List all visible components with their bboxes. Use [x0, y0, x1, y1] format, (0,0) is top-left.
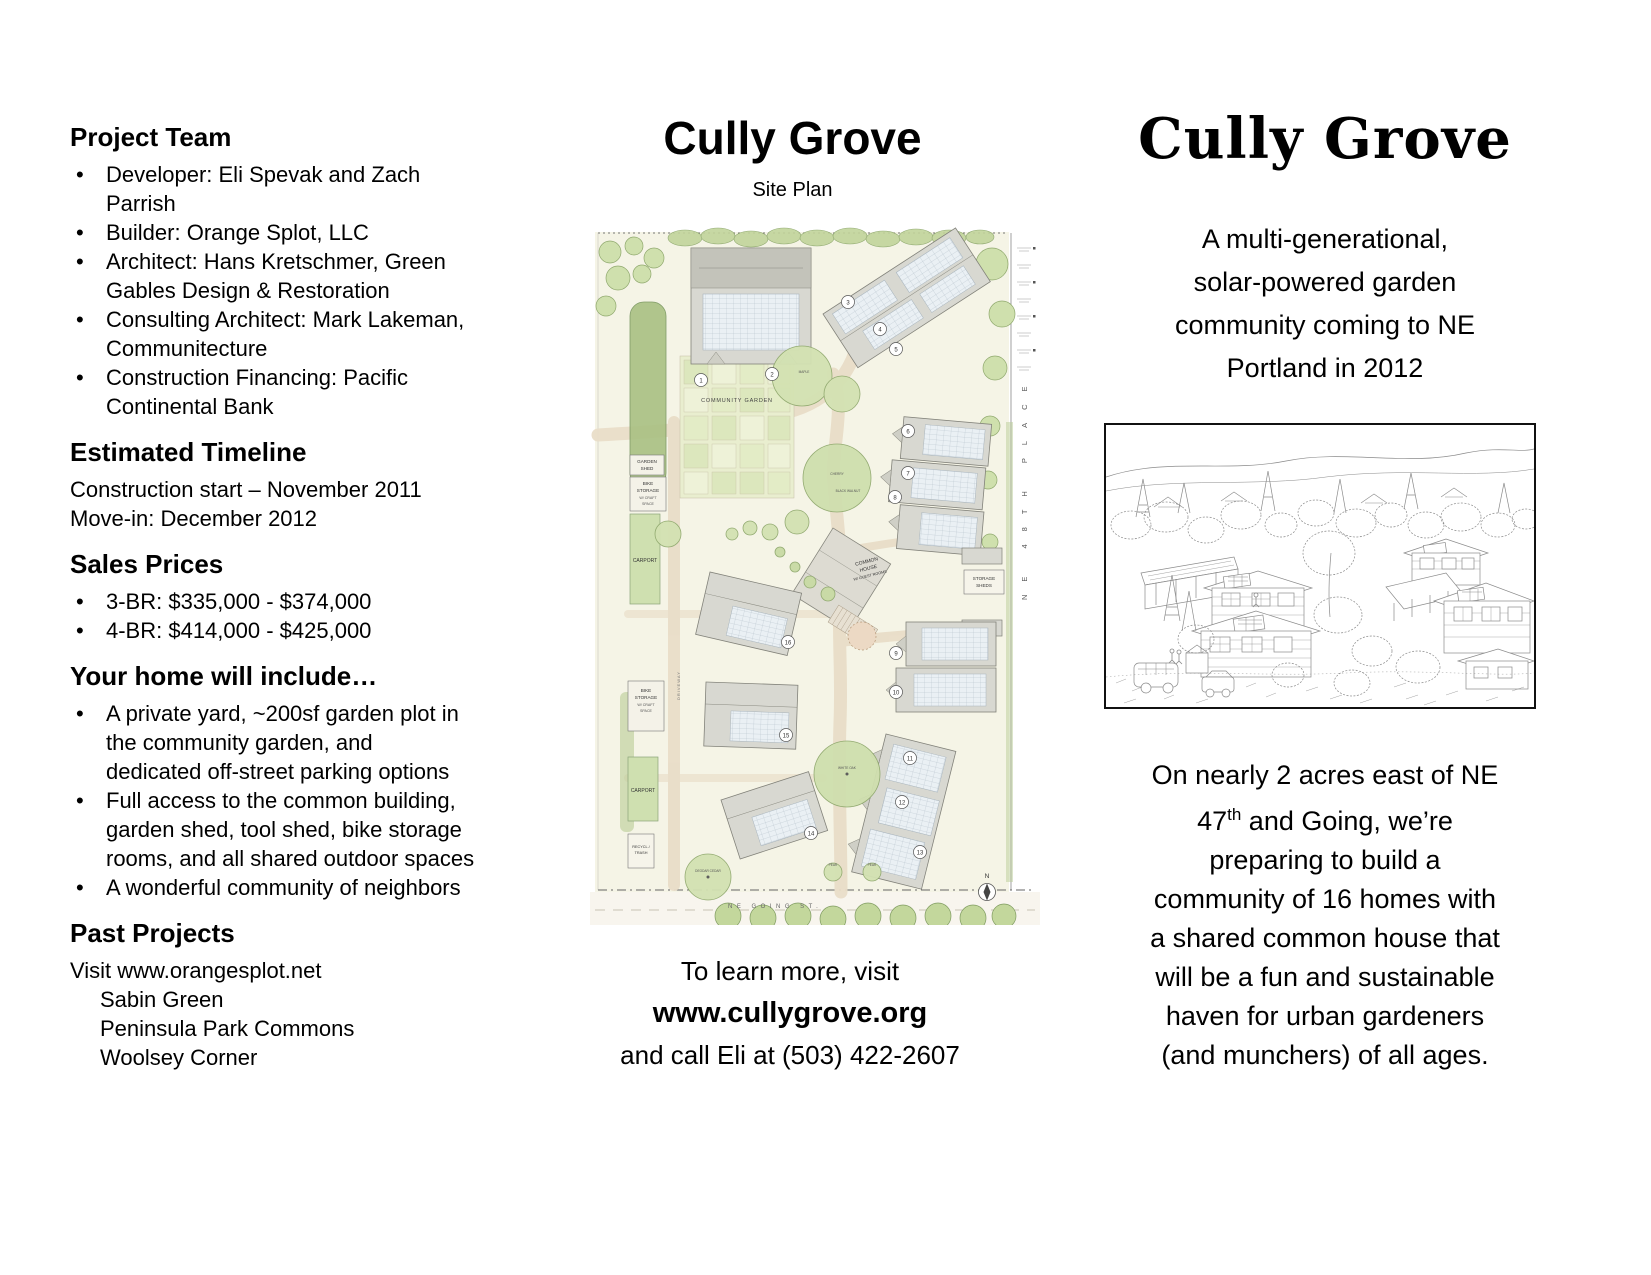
past-project: Woolsey Corner [70, 1043, 530, 1072]
bullet-line: 4-BR: $414,000 - $425,000 [106, 616, 530, 645]
paragraph-line: will be a fun and sustainable [1080, 958, 1570, 997]
timeline-line: Construction start – November 2011 [70, 475, 530, 504]
brochure-page: Project Team • Developer: Eli Spevak and… [0, 0, 1651, 1275]
bullet-line: Gables Design & Restoration [106, 276, 530, 305]
intro-paragraph: On nearly 2 acres east of NE 47th and Go… [1080, 756, 1570, 1075]
svg-text:MAPLE: MAPLE [799, 370, 810, 374]
svg-text:16: 16 [785, 641, 792, 647]
street-name-ne-48th-place: NE 48TH PLACE [1020, 373, 1029, 600]
bullet-marker: • [70, 699, 106, 786]
svg-text:SPACE: SPACE [642, 502, 655, 506]
tree-schedule-marks [1017, 247, 1036, 370]
svg-text:PEAR: PEAR [829, 863, 838, 867]
svg-text:SPACE: SPACE [640, 709, 653, 713]
paragraph-line: On nearly 2 acres east of NE [1080, 756, 1570, 795]
hedge [1006, 422, 1013, 882]
svg-text:SHED: SHED [641, 466, 654, 471]
svg-text:DEODAR CEDAR: DEODAR CEDAR [695, 869, 721, 873]
paragraph-line: preparing to build a [1080, 841, 1570, 880]
svg-text:STORAGE: STORAGE [973, 576, 995, 581]
list-item: • 4-BR: $414,000 - $425,000 [70, 616, 530, 645]
bullet-line: the community garden, and [106, 728, 530, 757]
svg-text:N: N [985, 873, 990, 880]
svg-text:TRASH: TRASH [635, 851, 648, 855]
section-title-sales-prices: Sales Prices [70, 549, 530, 579]
community-sketch-illustration [1104, 423, 1536, 709]
patio-circle [848, 622, 876, 650]
middle-title: Cully Grove [555, 112, 1030, 164]
bullet-line: Parrish [106, 189, 530, 218]
tagline-line: community coming to NE [1085, 304, 1565, 347]
tagline-line: A multi-generational, [1085, 218, 1565, 261]
bullet-line: Communitecture [106, 334, 530, 363]
paragraph-line: a shared common house that [1080, 919, 1570, 958]
building-1-2 [691, 248, 811, 364]
svg-text:BLACK WALNUT: BLACK WALNUT [836, 489, 861, 493]
svg-text:RECYCL./: RECYCL./ [632, 845, 650, 849]
list-item: • Consulting Architect: Mark Lakeman,Com… [70, 305, 530, 363]
contact-line: To learn more, visit [540, 950, 1040, 992]
bullet-line: Full access to the common building, [106, 786, 530, 815]
svg-text:CARPORT: CARPORT [631, 788, 655, 794]
svg-text:PEAR: PEAR [868, 863, 877, 867]
svg-text:W/ CRAFT: W/ CRAFT [639, 496, 657, 500]
middle-subtitle: Site Plan [555, 178, 1030, 202]
bullet-line: Architect: Hans Kretschmer, Green [106, 247, 530, 276]
community-garden-label: COMMUNITY GARDEN [701, 398, 773, 404]
tagline: A multi-generational, solar-powered gard… [1085, 218, 1565, 390]
svg-text:SHEDS: SHEDS [976, 583, 992, 588]
svg-text:11: 11 [907, 757, 914, 763]
paragraph-line: community of 16 homes with [1080, 880, 1570, 919]
bullet-marker: • [70, 616, 106, 645]
bullet-marker: • [70, 305, 106, 363]
list-item: • Full access to the common building,gar… [70, 786, 530, 873]
svg-text:10: 10 [893, 691, 900, 697]
bullet-marker: • [70, 873, 106, 902]
driveway-label: DRIVEWAY [676, 671, 681, 700]
bullet-line: dedicated off-street parking options [106, 757, 530, 786]
past-projects-intro: Visit www.orangesplot.net [70, 956, 530, 985]
timeline-line: Move-in: December 2012 [70, 504, 530, 533]
bullet-line: Builder: Orange Splot, LLC [106, 218, 530, 247]
phone-line: and call Eli at (503) 422-2607 [540, 1034, 1040, 1076]
list-item: • Developer: Eli Spevak and ZachParrish [70, 160, 530, 218]
svg-text:BIKE: BIKE [643, 481, 653, 486]
paragraph-line: 47th and Going, we’re [1080, 795, 1570, 841]
bullet-marker: • [70, 218, 106, 247]
list-item: • A wonderful community of neighbors [70, 873, 530, 902]
site-plan-svg: COMMUNITY GARDEN [590, 222, 1040, 925]
bullet-line: 3-BR: $335,000 - $374,000 [106, 587, 530, 616]
bullet-line: rooms, and all shared outdoor spaces [106, 844, 530, 873]
website-url: www.cullygrove.org [540, 992, 1040, 1034]
svg-text:12: 12 [899, 801, 906, 807]
bullet-line: garden shed, tool shed, bike storage [106, 815, 530, 844]
svg-text:STORAGE: STORAGE [637, 488, 659, 493]
list-item: • Builder: Orange Splot, LLC [70, 218, 530, 247]
list-item: • A private yard, ~200sf garden plot int… [70, 699, 530, 786]
bullet-line: A wonderful community of neighbors [106, 873, 530, 902]
bullet-line: Construction Financing: Pacific [106, 363, 530, 392]
bullet-line: Consulting Architect: Mark Lakeman, [106, 305, 530, 334]
bullet-line: Developer: Eli Spevak and Zach [106, 160, 530, 189]
bullet-marker: • [70, 363, 106, 421]
tagline-line: solar-powered garden [1085, 261, 1565, 304]
bullet-marker: • [70, 160, 106, 218]
svg-text:WHITE OAK: WHITE OAK [838, 766, 857, 770]
section-title-includes: Your home will include… [70, 661, 530, 691]
tagline-line: Portland in 2012 [1085, 347, 1565, 390]
bullet-marker: • [70, 587, 106, 616]
superscript-th: th [1227, 805, 1241, 824]
list-item: • 3-BR: $335,000 - $374,000 [70, 587, 530, 616]
list-item: • Construction Financing: PacificContine… [70, 363, 530, 421]
svg-text:GARDEN: GARDEN [637, 459, 657, 464]
community-sketch-svg [1106, 425, 1534, 707]
past-project: Peninsula Park Commons [70, 1014, 530, 1043]
bullet-marker: • [70, 786, 106, 873]
section-title-project-team: Project Team [70, 122, 530, 152]
brochure-title: Cully Grove [1085, 108, 1565, 170]
street-name-ne-going-st: NE GOING ST. [728, 904, 822, 910]
bullet-line: Continental Bank [106, 392, 530, 421]
list-item: • Architect: Hans Kretschmer, GreenGable… [70, 247, 530, 305]
paragraph-line: (and munchers) of all ages. [1080, 1036, 1570, 1075]
svg-text:BIKE: BIKE [641, 688, 651, 693]
svg-text:CARPORT: CARPORT [633, 558, 657, 564]
site-plan-illustration: COMMUNITY GARDEN [590, 222, 1040, 925]
svg-text:13: 13 [917, 851, 924, 857]
section-title-past-projects: Past Projects [70, 918, 530, 948]
left-panel: Project Team • Developer: Eli Spevak and… [70, 122, 530, 1072]
bullet-line: A private yard, ~200sf garden plot in [106, 699, 530, 728]
svg-text:14: 14 [808, 832, 815, 838]
svg-text:STORAGE: STORAGE [635, 695, 657, 700]
svg-text:CHERRY: CHERRY [830, 472, 844, 476]
bullet-marker: • [70, 247, 106, 305]
svg-text:W/ CRAFT: W/ CRAFT [637, 703, 655, 707]
paragraph-line: haven for urban gardeners [1080, 997, 1570, 1036]
svg-text:15: 15 [783, 734, 790, 740]
past-project: Sabin Green [70, 985, 530, 1014]
contact-block: To learn more, visit www.cullygrove.org … [540, 950, 1040, 1076]
section-title-timeline: Estimated Timeline [70, 437, 530, 467]
